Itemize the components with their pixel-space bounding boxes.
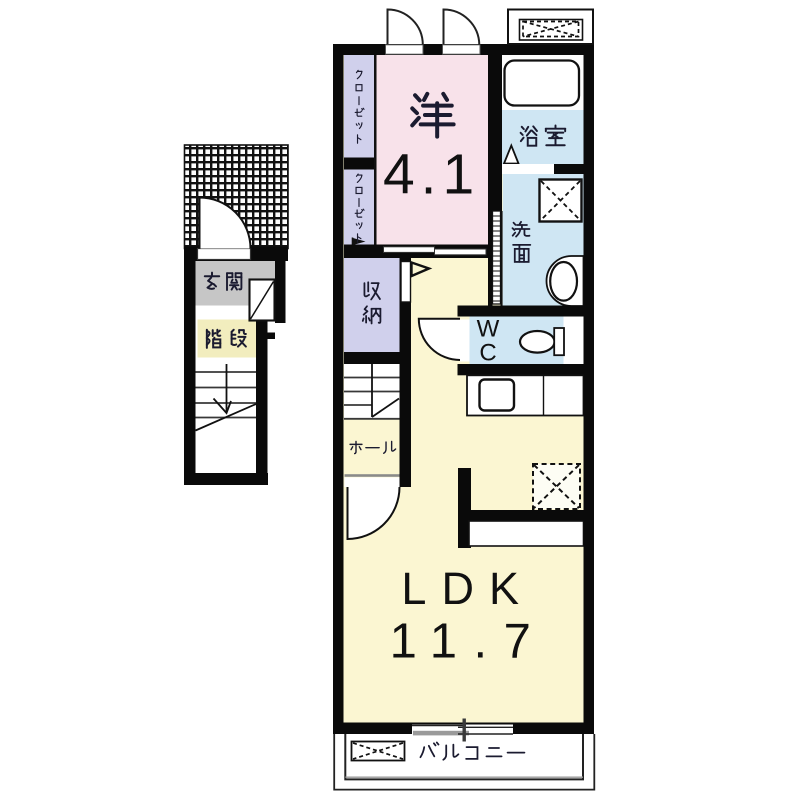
svg-text:11.7: 11.7 [390, 615, 548, 669]
svg-text:LDK: LDK [401, 563, 534, 614]
svg-text:C: C [479, 340, 496, 367]
svg-text:W: W [477, 316, 500, 343]
svg-text:4.1: 4.1 [383, 143, 480, 207]
